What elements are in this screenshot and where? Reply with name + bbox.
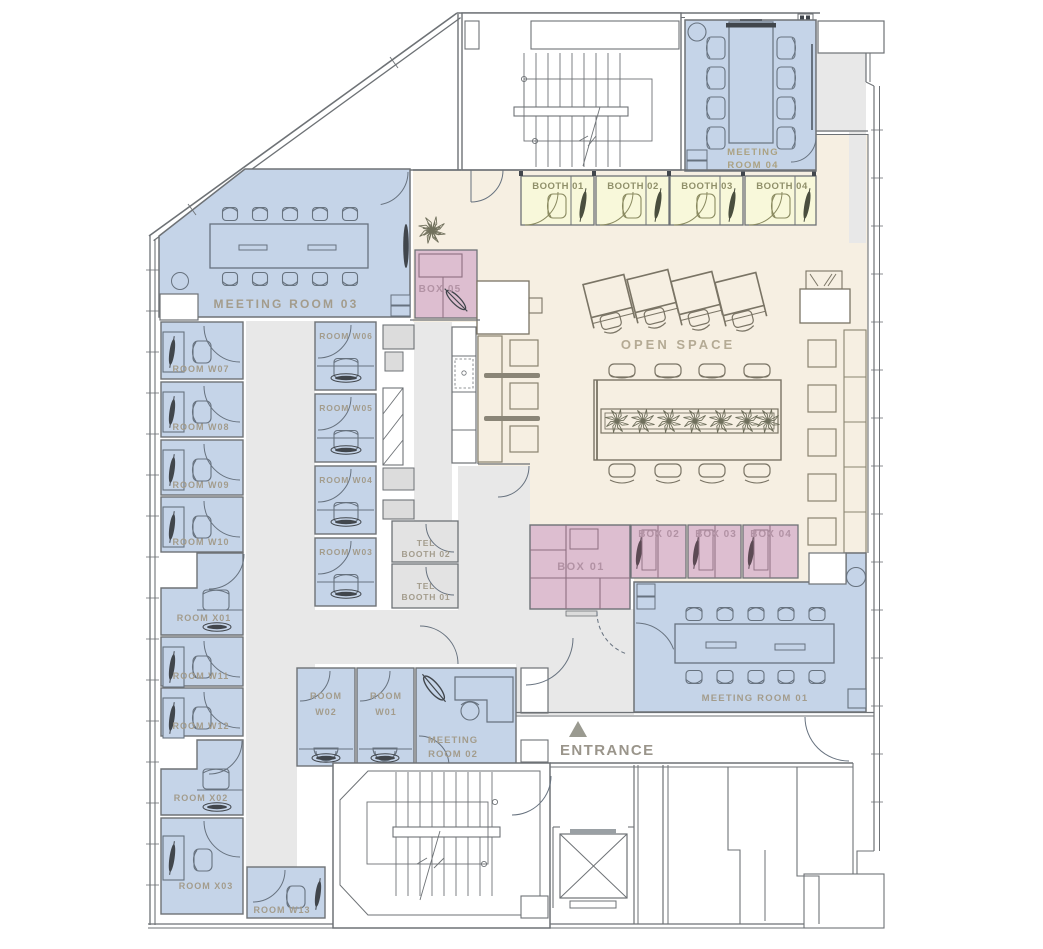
svg-text:ROOM W12: ROOM W12 [172,721,229,731]
svg-text:ROOM W07: ROOM W07 [172,364,229,374]
svg-text:BOOTH 03: BOOTH 03 [681,181,733,192]
svg-text:W01: W01 [375,707,397,717]
svg-text:BOX 05: BOX 05 [419,284,462,295]
svg-text:MEETING: MEETING [727,147,779,158]
svg-text:ROOM W06: ROOM W06 [319,331,372,341]
svg-text:ROOM W03: ROOM W03 [319,547,372,557]
svg-text:BOOTH 04: BOOTH 04 [756,181,808,192]
svg-text:ROOM W10: ROOM W10 [172,537,229,547]
svg-text:BOOTH 02: BOOTH 02 [402,549,451,559]
svg-text:BOX 02: BOX 02 [638,529,680,540]
svg-text:BOOTH 01: BOOTH 01 [402,592,451,602]
svg-text:ROOM W13: ROOM W13 [253,905,310,915]
svg-text:ENTRANCE: ENTRANCE [560,742,655,759]
svg-text:BOX 04: BOX 04 [750,529,792,540]
svg-text:ROOM: ROOM [310,691,342,701]
svg-text:ROOM X03: ROOM X03 [179,881,234,891]
svg-text:BOX 01: BOX 01 [557,561,605,573]
svg-text:ROOM X01: ROOM X01 [177,613,232,623]
svg-text:ROOM W09: ROOM W09 [172,480,229,490]
svg-text:BOOTH 01: BOOTH 01 [532,181,584,192]
svg-text:MEETING: MEETING [428,735,478,746]
svg-text:W02: W02 [315,707,337,717]
svg-text:ROOM W08: ROOM W08 [172,422,229,432]
svg-text:ROOM 02: ROOM 02 [428,749,478,760]
svg-text:ROOM X02: ROOM X02 [174,793,229,803]
svg-text:TEL: TEL [417,581,435,591]
svg-text:ROOM W11: ROOM W11 [173,671,230,681]
svg-text:OPEN SPACE: OPEN SPACE [621,337,735,352]
svg-text:BOX 03: BOX 03 [695,529,737,540]
svg-text:MEETING ROOM 03: MEETING ROOM 03 [213,297,358,311]
svg-text:MEETING ROOM 01: MEETING ROOM 01 [702,693,809,704]
svg-text:ROOM: ROOM [370,691,402,701]
svg-text:ROOM W05: ROOM W05 [319,403,372,413]
svg-text:BOOTH 02: BOOTH 02 [607,181,659,192]
svg-text:TEL: TEL [417,538,435,548]
svg-text:ROOM W04: ROOM W04 [319,475,372,485]
